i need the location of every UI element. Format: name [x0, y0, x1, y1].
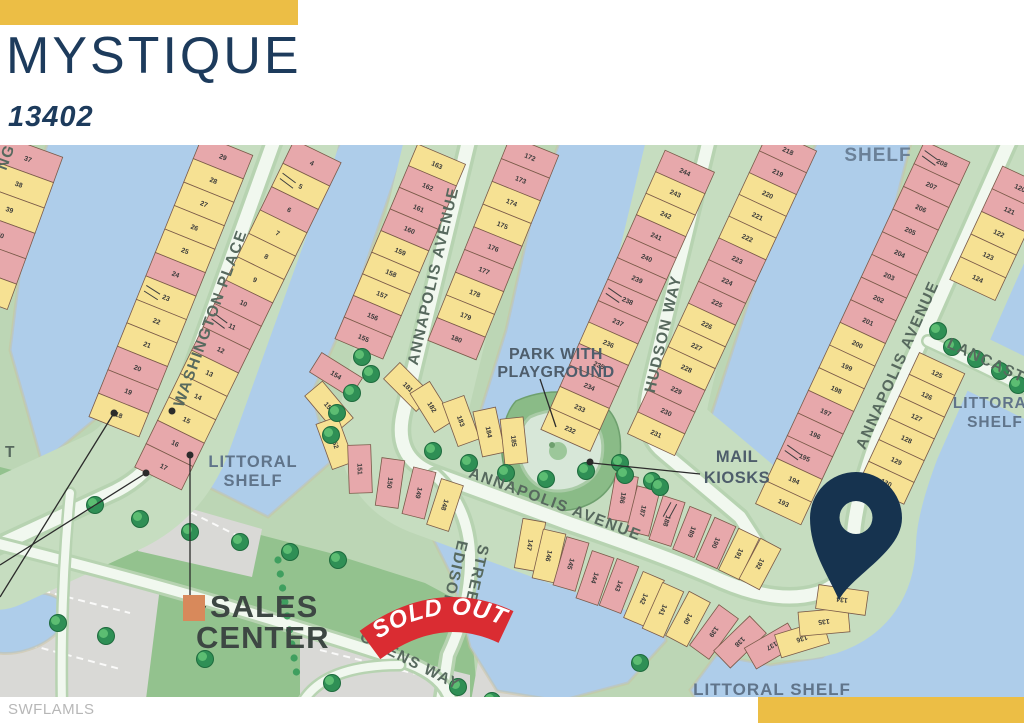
label-littoral-right-line2: SHELF	[967, 414, 1023, 431]
label-mail-line2: KIOSKS	[704, 469, 770, 487]
tree-icon	[324, 675, 341, 692]
tree-icon	[232, 534, 249, 551]
tree-icon	[98, 628, 115, 645]
header-gold-bar	[0, 0, 298, 25]
tree-icon	[425, 443, 442, 460]
tree-icon	[50, 615, 67, 632]
label-littoral-center-line2: SHELF	[223, 472, 282, 490]
tree-icon	[132, 511, 149, 528]
tree-icon	[538, 471, 555, 488]
tree-icon	[330, 552, 347, 569]
label-littoral-center-line1: LITTORAL	[208, 453, 297, 471]
label-park-line2: PLAYGROUND	[497, 364, 614, 381]
tree-icon	[363, 366, 380, 383]
tree-icon	[323, 427, 340, 444]
label-shelf-fragment-top: SHELF	[844, 145, 911, 166]
label-littoral-right-line1: LITTORAL	[953, 395, 1024, 412]
tree-icon	[578, 463, 595, 480]
watermark: SWFLAMLS	[8, 701, 95, 718]
tree-icon	[329, 405, 346, 422]
label-sales-line2: CENTER	[196, 620, 329, 655]
tree-icon	[617, 467, 634, 484]
page-title: MYSTIQUE	[6, 30, 302, 82]
tree-icon	[652, 479, 669, 496]
label-littoral-bottom: LITTORAL SHELF	[693, 680, 851, 697]
site-plan-map: 3738394041422928272625242322212019184567…	[0, 145, 1024, 697]
svg-text:151: 151	[355, 463, 362, 475]
label-mail-line1: MAIL	[716, 448, 758, 466]
bush-icon	[277, 570, 284, 577]
sales-center-building	[183, 595, 205, 621]
tree-icon	[354, 349, 371, 366]
label-sales-line1: SALES	[210, 589, 318, 624]
tree-icon	[282, 544, 299, 561]
tree-icon	[632, 655, 649, 672]
svg-text:135: 135	[818, 617, 830, 625]
lot-151: 151	[348, 445, 373, 494]
lot-185: 185	[500, 417, 528, 465]
listing-number: 13402	[8, 101, 94, 134]
label-park-line1: PARK WITH	[509, 346, 603, 363]
tree-icon	[344, 385, 361, 402]
street-label-fragment-left-bottom: T	[5, 444, 16, 461]
footer-gold-bar	[758, 697, 1024, 723]
tree-icon	[930, 323, 947, 340]
mls-photo-site-map: MYSTIQUE 13402	[0, 0, 1024, 723]
svg-text:185: 185	[509, 435, 517, 447]
bush-icon	[293, 668, 300, 675]
bush-icon	[274, 556, 281, 563]
bush-icon	[291, 654, 298, 661]
